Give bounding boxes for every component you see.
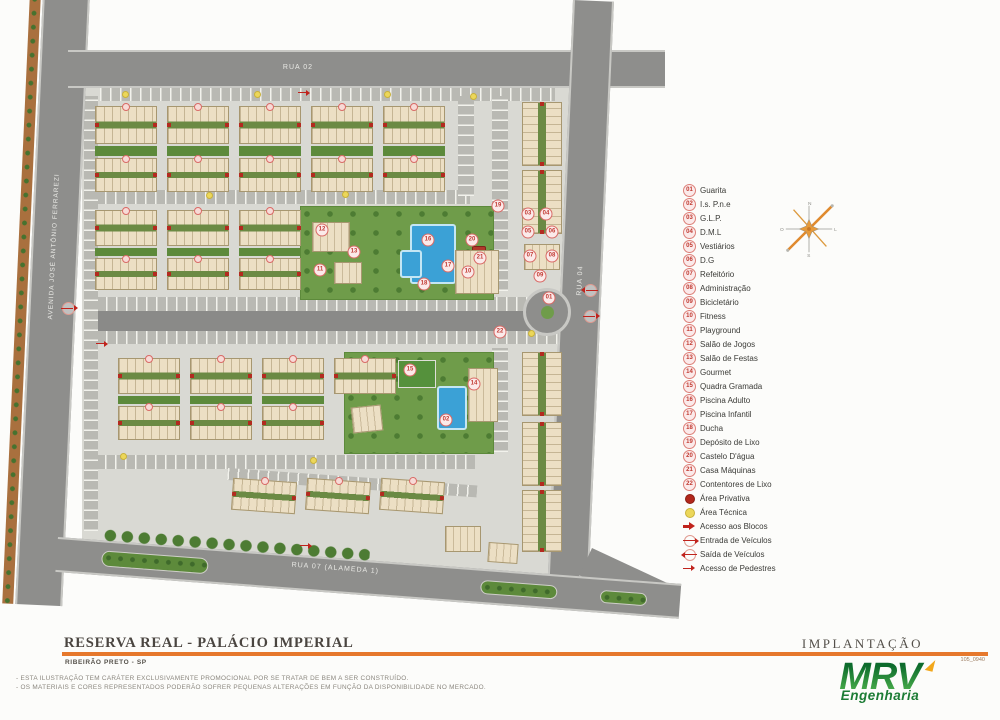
legend-item: 08Administração <box>683 281 798 295</box>
building-block <box>239 158 301 192</box>
block-marker <box>361 355 369 363</box>
area-tecnica-dot <box>384 91 391 98</box>
legend-item-label: Casa Máquinas <box>700 466 756 475</box>
amenity-building <box>351 405 384 434</box>
legend-number-badge: 15 <box>683 380 696 393</box>
plan-number-badge: 18 <box>418 278 431 291</box>
street-label-avenue: AVENIDA JOSÉ ANTÔNIO FERRAREZI <box>47 173 61 319</box>
area-tecnica-dot <box>122 91 129 98</box>
building-block <box>95 158 157 192</box>
block-marker <box>122 255 130 263</box>
area-tecnica-dot <box>470 93 477 100</box>
area-tecnica-dot <box>206 192 213 199</box>
disclaimer-line-1: - ESTA ILUSTRAÇÃO TEM CARÁTER EXCLUSIVAM… <box>16 675 486 684</box>
legend-item: 04D.M.L <box>683 225 798 239</box>
building-block <box>262 358 324 394</box>
legend-item: 20Castelo D'água <box>683 449 798 463</box>
building-block <box>190 406 252 440</box>
legend-item-label: D.G <box>700 256 714 265</box>
swimming-pool <box>400 250 422 278</box>
legend-item: 05Vestiários <box>683 239 798 253</box>
building-block <box>167 210 229 246</box>
legend-number-badge: 08 <box>683 282 696 295</box>
road-median-island <box>600 590 648 606</box>
dot-red-icon <box>683 492 696 505</box>
building-block <box>167 258 229 290</box>
plan-number-badge: 17 <box>442 260 455 273</box>
legend-symbol-item: Acesso de Pedestres <box>683 561 798 575</box>
plan-number-badge: 10 <box>462 266 475 279</box>
compass-s: S <box>807 253 810 258</box>
legend-item: 13Salão de Festas <box>683 351 798 365</box>
legend-item-label: Ducha <box>700 424 723 433</box>
building-block <box>95 258 157 290</box>
amenity-building <box>487 542 518 564</box>
parking-strip <box>95 190 470 204</box>
area-tecnica-dot <box>310 457 317 464</box>
site-plan: AVENIDA JOSÉ ANTÔNIO FERRAREZI RUA 02 RU… <box>0 0 1000 630</box>
legend-symbol-label: Saída de Veículos <box>700 550 765 559</box>
building-block <box>167 106 229 144</box>
building-block <box>311 106 373 144</box>
sheet-code: 105_0940 <box>961 657 985 663</box>
project-location: RIBEIRÃO PRETO - SP <box>65 659 147 666</box>
legend-item-label: Quadra Gramada <box>700 382 762 391</box>
compass-e: L <box>834 227 837 233</box>
legend-item: 09Bicicletário <box>683 295 798 309</box>
legend: 01Guarita02I.s. P.n.e03G.L.P.04D.M.L05Ve… <box>683 183 798 575</box>
legend-number-badge: 16 <box>683 394 696 407</box>
amenity-building <box>468 368 498 422</box>
plan-number-badge: 19 <box>492 200 505 213</box>
legend-number-badge: 10 <box>683 310 696 323</box>
pedestrian-access-arrow <box>298 89 310 96</box>
building-block <box>383 106 445 144</box>
legend-item: 17Piscina Infantil <box>683 407 798 421</box>
block-marker <box>266 207 274 215</box>
building-block <box>239 106 301 144</box>
parking-strip <box>458 96 474 196</box>
building-block <box>239 210 301 246</box>
mrv-logo-subtext: Engenharia <box>810 688 950 703</box>
building-block <box>231 478 297 514</box>
plan-number-badge: 07 <box>524 250 537 263</box>
building-block <box>334 358 396 394</box>
circle-arrow-right-icon <box>683 534 696 547</box>
legend-item-label: Castelo D'água <box>700 452 754 461</box>
arrow-thin-icon <box>683 562 696 575</box>
saida-veiculos-marker <box>584 310 597 323</box>
plan-number-badge: 06 <box>546 226 559 239</box>
plan-number-badge: 20 <box>466 234 479 247</box>
arrow-bold-icon <box>683 520 696 533</box>
mrv-logo: MRV Engenharia <box>810 658 950 703</box>
disclaimer-line-2: - OS MATERIAIS E CORES REPRESENTADOS POD… <box>16 684 486 693</box>
circle-arrow-left-icon <box>683 548 696 561</box>
block-marker <box>122 155 130 163</box>
legend-item: 12Salão de Jogos <box>683 337 798 351</box>
legend-number-badge: 07 <box>683 268 696 281</box>
plan-number-badge: 15 <box>404 364 417 377</box>
building-block <box>95 106 157 144</box>
plan-number-badge: 11 <box>314 264 327 277</box>
area-tecnica-dot <box>254 91 261 98</box>
block-marker <box>145 403 153 411</box>
block-marker <box>122 207 130 215</box>
legend-symbol-item: Área Privativa <box>683 491 798 505</box>
building-block <box>522 102 562 166</box>
legend-item: 11Playground <box>683 323 798 337</box>
block-marker <box>335 477 344 486</box>
avenue-jose-antonio-ferrarezi: AVENIDA JOSÉ ANTÔNIO FERRAREZI <box>2 0 88 606</box>
legend-symbol-item: Área Técnica <box>683 505 798 519</box>
plan-number-badge: 05 <box>522 226 535 239</box>
legend-symbol-label: Acesso aos Blocos <box>700 522 768 531</box>
legend-item-label: Piscina Adulto <box>700 396 750 405</box>
block-marker <box>289 355 297 363</box>
implantation-sheet: AVENIDA JOSÉ ANTÔNIO FERRAREZI RUA 02 RU… <box>0 0 1000 720</box>
block-marker <box>217 403 225 411</box>
legend-number-badge: 21 <box>683 464 696 477</box>
legend-number-badge: 06 <box>683 254 696 267</box>
building-block <box>95 210 157 246</box>
legend-number-badge: 09 <box>683 296 696 309</box>
block-marker <box>266 103 274 111</box>
legend-item-label: Refeitório <box>700 270 734 279</box>
legend-item: 16Piscina Adulto <box>683 393 798 407</box>
compass-n: N <box>808 201 812 207</box>
legend-item: 21Casa Máquinas <box>683 463 798 477</box>
block-marker <box>338 103 346 111</box>
parking-strip <box>100 86 555 101</box>
amenity-building <box>445 526 481 552</box>
area-tecnica-dot <box>342 191 349 198</box>
plan-number-badge: 02 <box>440 414 453 427</box>
parking-strip <box>95 455 475 469</box>
legend-item: 19Depósito de Lixo <box>683 435 798 449</box>
building-block <box>262 406 324 440</box>
legend-item: 15Quadra Gramada <box>683 379 798 393</box>
block-marker <box>217 355 225 363</box>
street-label-rua-02: RUA 02 <box>283 64 313 71</box>
legend-symbol-item: Saída de Veículos <box>683 547 798 561</box>
block-marker <box>409 477 418 486</box>
plan-number-badge: 22 <box>494 326 507 339</box>
legend-item-label: Playground <box>700 326 740 335</box>
legend-item-label: Contentores de Lixo <box>700 480 772 489</box>
legend-symbol-label: Área Técnica <box>700 508 747 517</box>
accent-rule <box>62 652 988 656</box>
block-marker <box>266 155 274 163</box>
legend-number-badge: 13 <box>683 352 696 365</box>
legend-item-label: Gourmet <box>700 368 731 377</box>
block-marker <box>122 103 130 111</box>
plan-number-badge: 01 <box>543 292 556 305</box>
plan-number-badge: 09 <box>534 270 547 283</box>
legend-number-badge: 14 <box>683 366 696 379</box>
legend-symbol-label: Área Privativa <box>700 494 750 503</box>
block-marker <box>410 103 418 111</box>
block-marker <box>289 403 297 411</box>
legend-number-badge: 03 <box>683 212 696 225</box>
legend-number-badge: 20 <box>683 450 696 463</box>
legend-number-badge: 05 <box>683 240 696 253</box>
block-marker <box>410 155 418 163</box>
sheet-title: IMPLANTAÇÃO <box>802 636 923 652</box>
plan-number-badge: 16 <box>422 234 435 247</box>
legend-item-label: Depósito de Lixo <box>700 438 760 447</box>
block-marker <box>194 103 202 111</box>
entrada-veiculos-marker <box>62 302 75 315</box>
area-tecnica-dot <box>120 453 127 460</box>
building-block <box>118 358 180 394</box>
legend-number-badge: 02 <box>683 198 696 211</box>
legend-item: 10Fitness <box>683 309 798 323</box>
legend-item: 14Gourmet <box>683 365 798 379</box>
legend-item: 18Ducha <box>683 421 798 435</box>
amenity-building <box>334 262 362 284</box>
legend-item-label: D.M.L <box>700 228 721 237</box>
plan-number-badge: 08 <box>546 250 559 263</box>
block-marker <box>194 207 202 215</box>
plan-number-badge: 04 <box>540 208 553 221</box>
building-block <box>379 478 445 514</box>
block-marker <box>261 477 270 486</box>
legend-item-label: Salão de Festas <box>700 354 758 363</box>
legend-item-label: Administração <box>700 284 751 293</box>
pedestrian-access-arrow <box>300 542 312 549</box>
building-block <box>522 490 562 552</box>
road-median-island <box>101 550 209 574</box>
legend-item-label: Fitness <box>700 312 726 321</box>
building-block <box>522 170 562 234</box>
legend-item-label: Piscina Infantil <box>700 410 752 419</box>
legend-item: 06D.G <box>683 253 798 267</box>
block-marker <box>194 155 202 163</box>
block-marker <box>266 255 274 263</box>
legend-item: 07Refeitório <box>683 267 798 281</box>
building-block <box>190 358 252 394</box>
legend-number-badge: 22 <box>683 478 696 491</box>
block-marker <box>145 355 153 363</box>
building-block <box>118 406 180 440</box>
legend-item: 22Contentores de Lixo <box>683 477 798 491</box>
legend-number-badge: 17 <box>683 408 696 421</box>
building-block <box>522 422 562 486</box>
legend-item-label: I.s. P.n.e <box>700 200 731 209</box>
road-median-island <box>480 580 558 600</box>
legend-number-badge: 04 <box>683 226 696 239</box>
legend-number-badge: 18 <box>683 422 696 435</box>
legend-item-label: G.L.P. <box>700 214 722 223</box>
plan-number-badge: 14 <box>468 378 481 391</box>
legend-symbol-item: Acesso aos Blocos <box>683 519 798 533</box>
project-title: RESERVA REAL - PALÁCIO IMPERIAL <box>64 635 354 652</box>
disclaimer: - ESTA ILUSTRAÇÃO TEM CARÁTER EXCLUSIVAM… <box>16 675 486 692</box>
building-block <box>383 158 445 192</box>
legend-item-label: Bicicletário <box>700 298 739 307</box>
legend-symbol-label: Acesso de Pedestres <box>700 564 776 573</box>
legend-item-label: Guarita <box>700 186 726 195</box>
legend-item-label: Vestiários <box>700 242 735 251</box>
legend-number-badge: 01 <box>683 184 696 197</box>
legend-item: 01Guarita <box>683 183 798 197</box>
plan-number-badge: 03 <box>522 208 535 221</box>
area-tecnica-dot <box>528 330 535 337</box>
pedestrian-access-arrow <box>96 340 108 347</box>
building-block <box>167 158 229 192</box>
legend-number-badge: 12 <box>683 338 696 351</box>
building-block <box>305 478 371 514</box>
block-marker <box>338 155 346 163</box>
legend-symbol-label: Entrada de Veículos <box>700 536 772 545</box>
building-block <box>239 258 301 290</box>
plan-number-badge: 12 <box>316 224 329 237</box>
plan-number-badge: 21 <box>474 252 487 265</box>
legend-item: 02I.s. P.n.e <box>683 197 798 211</box>
legend-symbol-item: Entrada de Veículos <box>683 533 798 547</box>
block-marker <box>194 255 202 263</box>
legend-item: 03G.L.P. <box>683 211 798 225</box>
plan-number-badge: 13 <box>348 246 361 259</box>
sports-court <box>398 360 436 388</box>
building-block <box>311 158 373 192</box>
legend-number-badge: 11 <box>683 324 696 337</box>
building-block <box>522 352 562 416</box>
legend-item-label: Salão de Jogos <box>700 340 755 349</box>
dot-yellow-icon <box>683 506 696 519</box>
entrada-veiculos-marker <box>584 284 597 297</box>
legend-number-badge: 19 <box>683 436 696 449</box>
street-label-rua-07: RUA 07 (ALAMEDA 1) <box>291 562 379 576</box>
